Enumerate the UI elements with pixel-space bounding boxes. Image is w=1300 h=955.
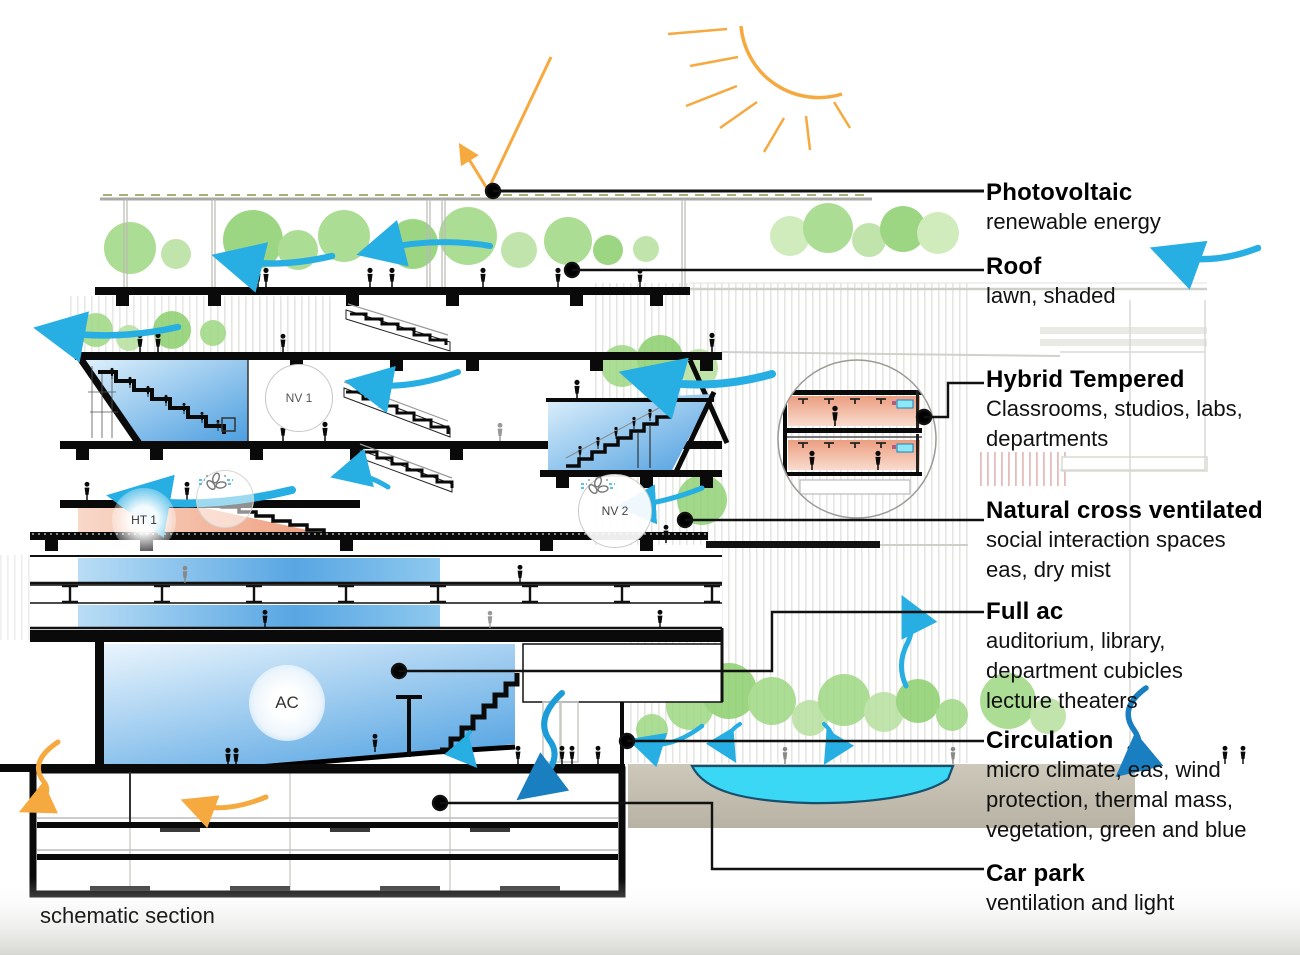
legend-line: eas, dry mist — [986, 555, 1298, 585]
zone-label-nv2: NV 2 — [602, 504, 629, 518]
legend-title: Full ac — [986, 597, 1298, 626]
legend-title: Hybrid Tempered — [986, 365, 1298, 394]
zone-badge-mist — [196, 470, 254, 528]
zone-badge-ht1: HT 1 — [112, 488, 176, 552]
legend-line: department cubicles — [986, 656, 1298, 686]
legend-line: micro climate, eas, wind — [986, 755, 1298, 785]
legend-line: lecture theaters — [986, 686, 1298, 716]
zone-label-ac: AC — [275, 693, 299, 713]
legend-item-roof: Roof lawn, shaded — [986, 252, 1298, 311]
legend-item-full-ac: Full ac auditorium, library, department … — [986, 597, 1298, 716]
legend-item-car-park: Car park ventilation and light — [986, 859, 1298, 918]
legend-item-hybrid-tempered: Hybrid Tempered Classrooms, studios, lab… — [986, 365, 1298, 454]
legend-line: auditorium, library, — [986, 626, 1298, 656]
zone-badge-ac: AC — [249, 665, 325, 741]
fan-mist-icon — [197, 471, 235, 495]
schematic-section-figure: NV 1 NV 2 HT 1 AC — [0, 0, 1300, 955]
legend-title: Circulation — [986, 726, 1298, 755]
legend-line: protection, thermal mass, — [986, 785, 1298, 815]
zone-badge-nv1: NV 1 — [265, 364, 333, 432]
sun — [462, 26, 850, 190]
legend-item-circulation: Circulation micro climate, eas, wind pro… — [986, 726, 1298, 845]
zone-badge-nv2: NV 2 — [578, 474, 652, 548]
legend-title: Photovoltaic — [986, 178, 1298, 207]
legend-line: social interaction spaces — [986, 525, 1298, 555]
fan-mist-icon — [579, 475, 617, 499]
legend-line: lawn, shaded — [986, 281, 1298, 311]
legend-line: ventilation and light — [986, 888, 1298, 918]
figure-caption: schematic section — [40, 903, 215, 929]
legend-title: Car park — [986, 859, 1298, 888]
legend-item-photovoltaic: Photovoltaic renewable energy — [986, 178, 1298, 237]
legend-title: Natural cross ventilated — [986, 496, 1298, 525]
zone-label-ht1: HT 1 — [131, 513, 157, 527]
legend-line: vegetation, green and blue — [986, 815, 1298, 845]
reflected-ray — [462, 148, 488, 190]
legend-title: Roof — [986, 252, 1298, 281]
legend-line: renewable energy — [986, 207, 1298, 237]
legend-line: Classrooms, studios, labs, — [986, 394, 1298, 424]
sun-ray — [488, 57, 551, 190]
legend-line: departments — [986, 424, 1298, 454]
legend-item-natural-cross-ventilated: Natural cross ventilated social interact… — [986, 496, 1298, 585]
zone-label-nv1: NV 1 — [286, 391, 313, 405]
